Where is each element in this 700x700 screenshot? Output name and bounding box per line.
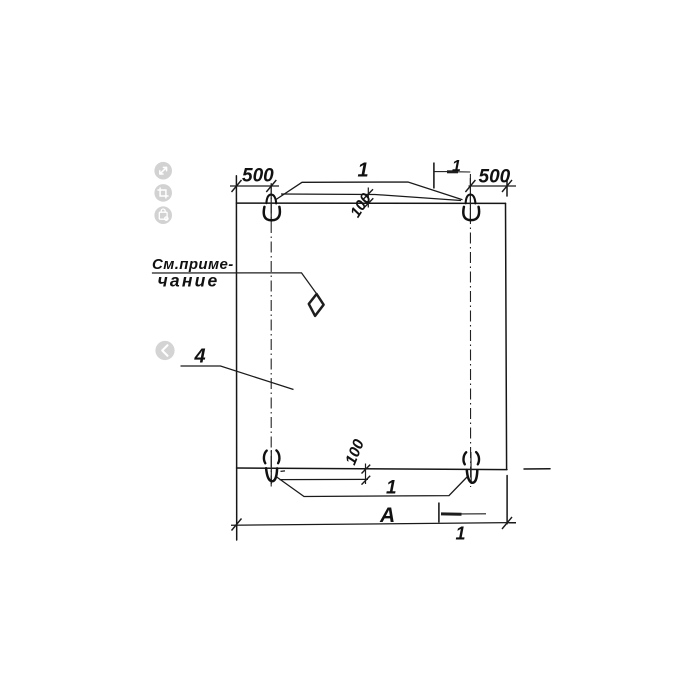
svg-text:1: 1 — [456, 524, 466, 544]
svg-text:1: 1 — [386, 478, 397, 499]
svg-text:А: А — [379, 504, 395, 527]
svg-text:4: 4 — [194, 346, 206, 368]
svg-text:500: 500 — [242, 166, 274, 187]
svg-text:100: 100 — [342, 437, 368, 468]
svg-text:500: 500 — [479, 167, 511, 188]
svg-text:чание: чание — [158, 271, 220, 291]
svg-text:1: 1 — [358, 160, 369, 182]
svg-text:1: 1 — [452, 158, 461, 175]
